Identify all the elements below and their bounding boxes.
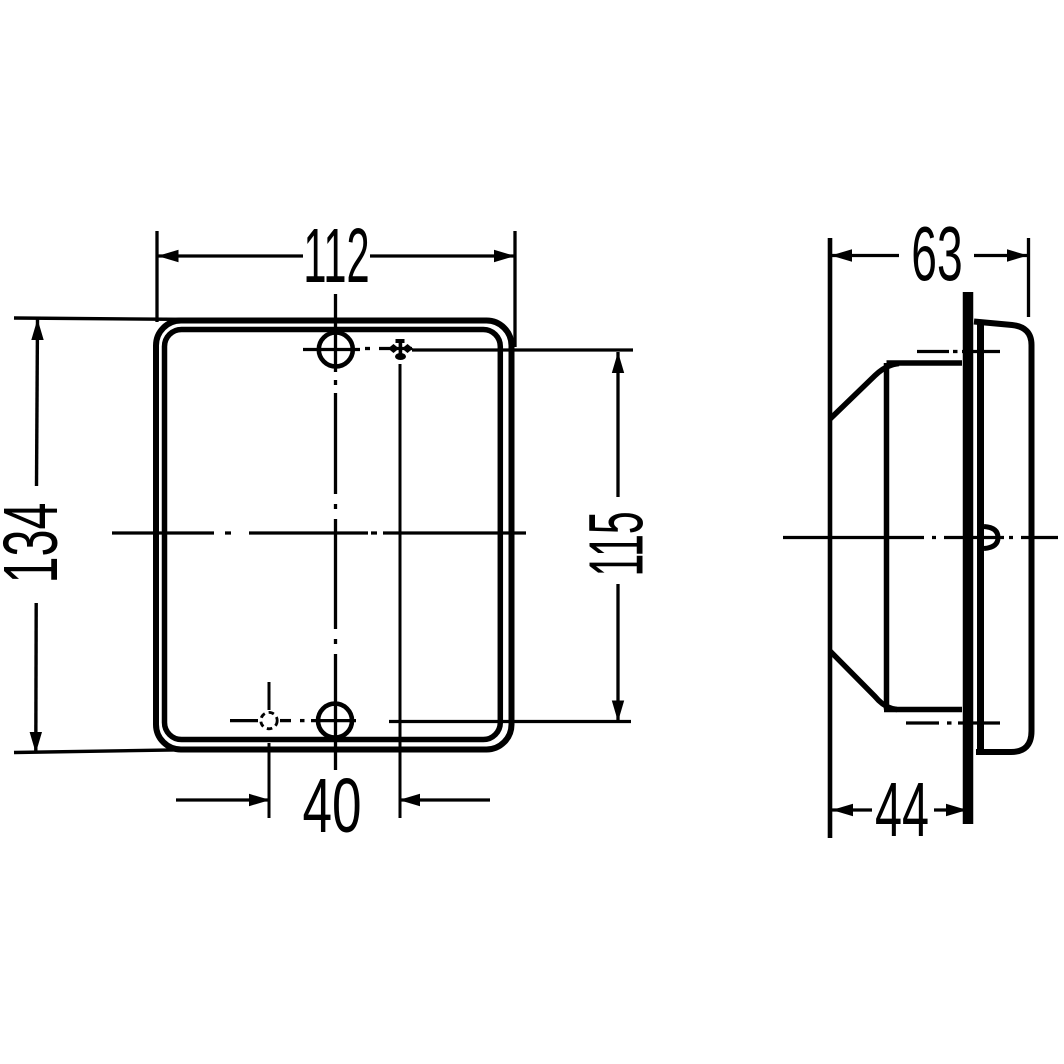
- svg-text:134: 134: [0, 503, 74, 584]
- svg-text:112: 112: [303, 214, 369, 300]
- svg-text:40: 40: [302, 763, 361, 849]
- svg-text:115: 115: [574, 511, 660, 576]
- svg-text:44: 44: [875, 767, 929, 853]
- svg-text:63: 63: [911, 213, 962, 298]
